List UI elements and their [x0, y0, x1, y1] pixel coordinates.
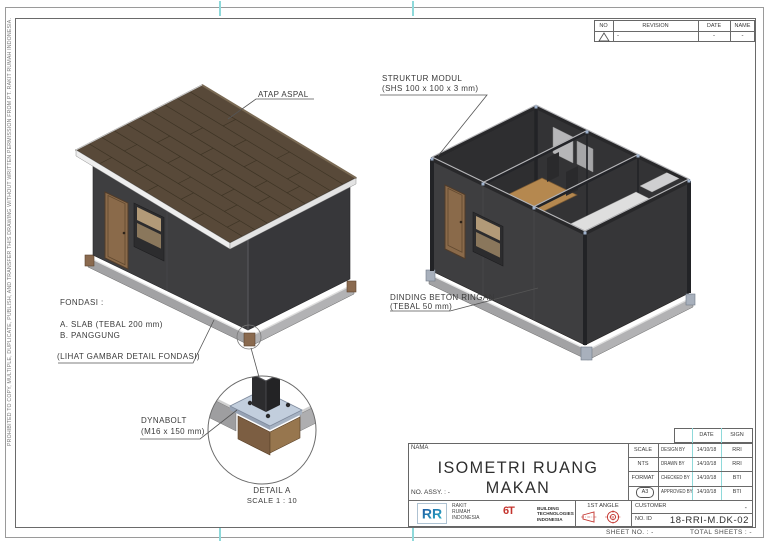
first-angle-label: 1ST ANGLE	[575, 503, 631, 509]
detail-a	[206, 374, 322, 484]
checked-sign: BTI	[721, 475, 753, 481]
scale-value: NTS	[628, 461, 658, 467]
drawn-sign: RRI	[721, 461, 753, 467]
label-fondasi-note: (LIHAT GAMBAR DETAIL FONDASI)	[57, 352, 200, 361]
bti-company-name: BUILDING TECHNOLOGIES INDONESIA	[537, 506, 574, 522]
drawn-by-label: DRAWN BY	[661, 461, 685, 467]
revision-date-value: -	[698, 33, 730, 39]
label-dynabolt-spec: (M16 x 150 mm)	[141, 427, 205, 436]
checked-date: 14/10/18	[692, 475, 721, 481]
revision-header-revision: REVISION	[613, 23, 698, 29]
revision-value: -	[617, 33, 619, 39]
first-angle-projection-icon	[581, 510, 627, 525]
label-dinding-spec: (TEBAL 50 mm)	[390, 302, 452, 311]
bti-logo-icon: 6T	[503, 505, 514, 517]
label-dynabolt: DYNABOLT	[141, 416, 187, 425]
base-plate	[581, 347, 592, 360]
label-fondasi-a: A. SLAB (TEBAL 200 mm)	[60, 320, 163, 329]
scale-label: SCALE	[628, 447, 658, 453]
revision-header-name: NAME	[730, 23, 755, 29]
total-sheets: TOTAL SHEETS : -	[690, 529, 752, 536]
foundation-pad	[244, 333, 255, 346]
design-by-label: DESIGN BY	[661, 447, 685, 453]
rri-logo-icon: RR	[417, 503, 447, 524]
dynabolt-bolt	[286, 403, 290, 407]
drawn-date: 14/10/18	[692, 461, 721, 467]
label-atap-aspal: ATAP ASPAL	[258, 90, 309, 99]
rri-company-name: RAKIT RUMAH INDONESIA	[452, 504, 480, 521]
design-date: 14/10/18	[692, 447, 721, 453]
svg-text:RR: RR	[422, 506, 442, 522]
right-building-interior-view	[426, 105, 695, 360]
approved-date: 14/10/18	[692, 489, 721, 495]
revision-header-date: DATE	[698, 23, 730, 29]
label-detail-title: DETAIL A	[227, 486, 317, 495]
right-building-door	[445, 185, 465, 259]
revision-triangle-icon	[598, 32, 610, 42]
nama-label: NAMA	[411, 445, 428, 451]
drawing-sheet: PROHIBITED TO COPY, MULTIPLE, DUPLICATE,…	[0, 0, 768, 543]
foundation-pad	[85, 255, 94, 266]
sheet-no: SHEET NO. : -	[606, 529, 654, 536]
base-plate	[426, 270, 435, 281]
design-sign: RRI	[721, 447, 753, 453]
label-struktur-modul-spec: (SHS 100 x 100 x 3 mm)	[382, 84, 478, 93]
label-fondasi-b: B. PANGGUNG	[60, 331, 120, 340]
customer-value: -	[631, 505, 747, 512]
sign-header: SIGN	[721, 432, 753, 438]
date-header: DATE	[692, 432, 721, 438]
revision-name-value: -	[730, 33, 755, 39]
approved-by-label: APPROVED BY	[661, 489, 693, 495]
approved-sign: BTI	[721, 489, 753, 495]
format-label: FORMAT	[628, 475, 658, 481]
revision-header-no: NO	[594, 23, 613, 29]
base-plate	[686, 294, 695, 305]
left-building-door	[105, 192, 128, 269]
dynabolt-bolt	[248, 401, 252, 405]
label-detail-scale: SCALE 1 : 10	[227, 496, 317, 505]
foundation-pad	[347, 281, 356, 292]
dynabolt-bolt	[266, 414, 270, 418]
label-fondasi-title: FONDASI :	[60, 298, 104, 307]
drawing-number: 18-RRI-M.DK-02	[631, 515, 754, 526]
label-dinding: DINDING BETON RINGAN	[390, 293, 495, 302]
no-assy: NO. ASSY. : -	[411, 489, 450, 496]
format-value: A3	[636, 487, 654, 498]
label-struktur-modul: STRUKTUR MODUL	[382, 74, 462, 83]
left-building-exterior	[76, 85, 356, 349]
checked-by-label: CHECKED BY	[661, 475, 690, 481]
